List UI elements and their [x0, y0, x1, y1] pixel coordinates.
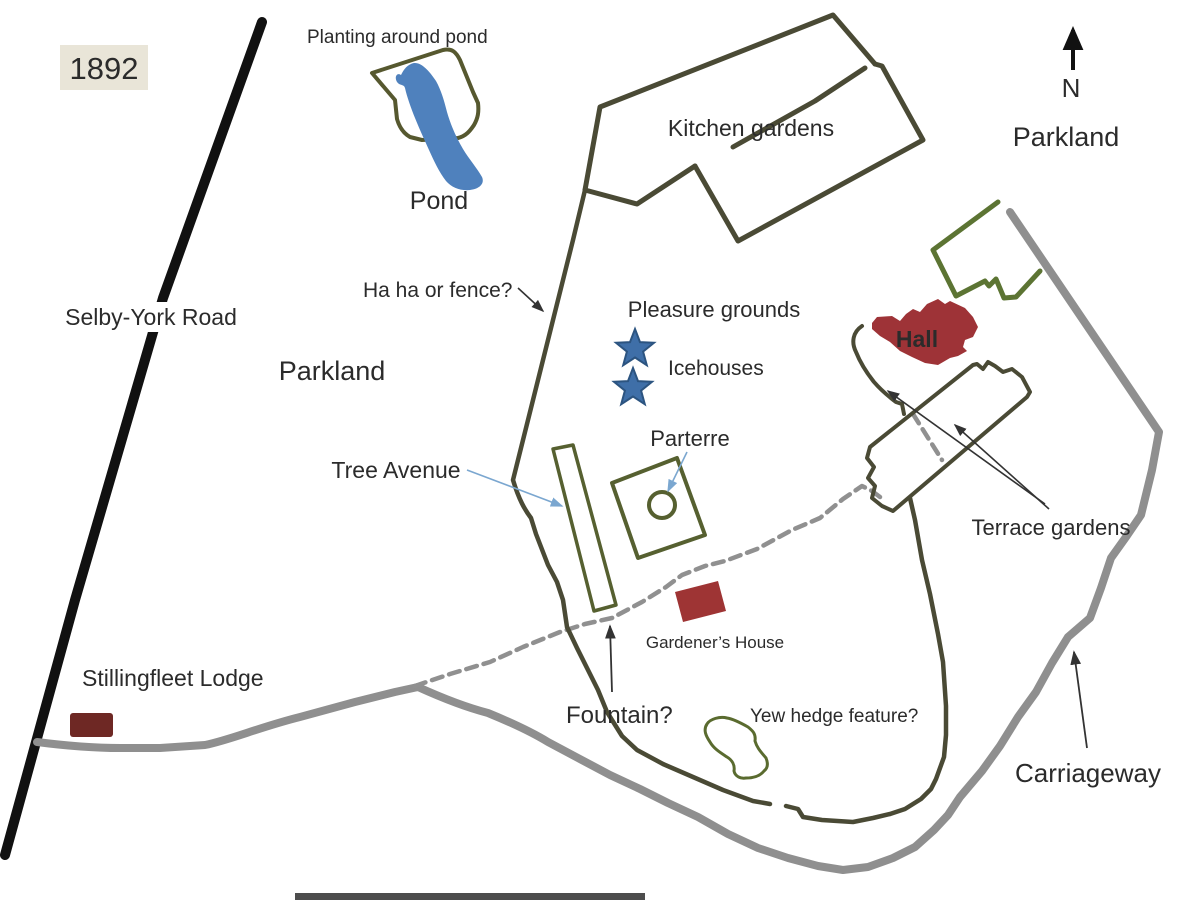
fountain-label: Fountain? — [566, 702, 673, 729]
north-label: N — [1062, 73, 1081, 103]
parterre-circle — [649, 492, 675, 518]
terrace-gardens-arrow-2 — [955, 425, 1049, 509]
year-label: 1892 — [70, 51, 139, 86]
carriageway-label: Carriageway — [1015, 758, 1161, 788]
parkland-left-label: Parkland — [279, 356, 386, 386]
gardeners-house-label: Gardener’s House — [646, 633, 784, 652]
pond-label: Pond — [410, 187, 468, 215]
selby-york-road-line — [5, 22, 262, 855]
icehouse-star-2 — [614, 368, 652, 404]
planting-around-pond-label: Planting around pond — [307, 27, 488, 48]
tree-avenue-rect — [553, 445, 616, 611]
parkland-right-label: Parkland — [1013, 122, 1120, 152]
icehouse-star-1 — [616, 329, 654, 365]
bottom-edge-strip — [295, 893, 645, 900]
estate-map-page: 1892 Selby-York Road Planting around pon… — [0, 0, 1200, 900]
boundary-southeast — [786, 498, 946, 822]
hall-label: Hall — [896, 326, 938, 352]
stillingfleet-lodge-label: Stillingfleet Lodge — [82, 665, 264, 691]
stillingfleet-lodge-building — [70, 713, 113, 737]
green-enclosure-outline — [933, 202, 1040, 298]
dashed-path — [415, 486, 880, 686]
kitchen-gardens-outline-a — [585, 15, 875, 190]
tree-avenue-label: Tree Avenue — [331, 457, 460, 483]
carriageway-arrow — [1074, 652, 1087, 748]
ha-ha-arrow — [518, 288, 543, 311]
selby-york-road-label: Selby-York Road — [65, 304, 237, 330]
icehouses-label: Icehouses — [668, 357, 764, 380]
fountain-arrow — [610, 626, 612, 692]
pleasure-grounds-label: Pleasure grounds — [628, 297, 800, 322]
ha-ha-label: Ha ha or fence? — [363, 279, 512, 302]
terrace-dashed-path — [913, 414, 942, 460]
kitchen-gardens-outline-b — [695, 64, 923, 241]
terrace-gardens-label: Terrace gardens — [972, 515, 1131, 540]
yew-hedge-label: Yew hedge feature? — [750, 706, 918, 727]
terrace-gardens-outline — [867, 362, 1030, 511]
estate-map: 1892 Selby-York Road Planting around pon… — [0, 0, 1200, 900]
gardeners-house-building — [675, 581, 726, 622]
terrace-gardens-arrow-1 — [888, 391, 1045, 504]
kitchen-gardens-outline-d — [585, 166, 695, 204]
kitchen-gardens-label: Kitchen gardens — [668, 115, 834, 141]
parterre-square — [612, 458, 705, 558]
parterre-label: Parterre — [650, 426, 729, 451]
